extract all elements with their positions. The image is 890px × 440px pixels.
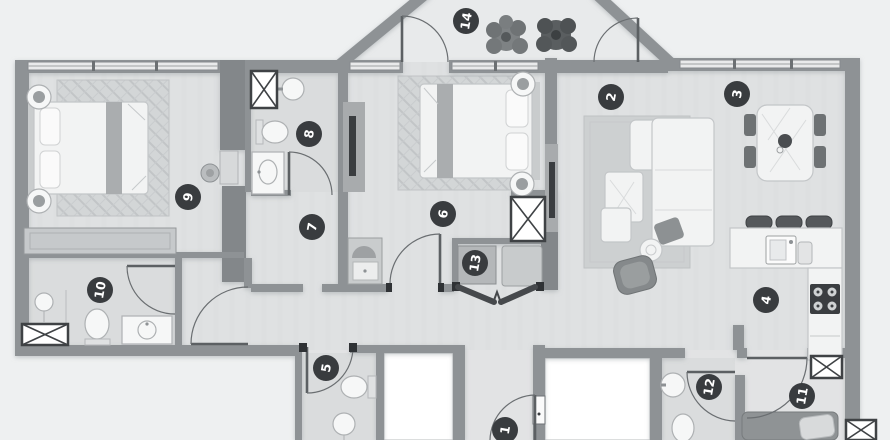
toilet-tank — [368, 376, 376, 398]
toilet-icon — [262, 121, 288, 143]
bedroom-6-vanity — [348, 238, 382, 284]
sink-icon — [259, 160, 277, 184]
room-marker-10: 10 — [87, 277, 113, 303]
room-marker-9: 9 — [175, 184, 201, 210]
floor-plan: 1 2 3 4 5 6 7 8 9 10 11 12 13 14 — [0, 0, 890, 440]
wardrobe-icon — [24, 228, 176, 254]
room-marker-2: 2 — [598, 84, 624, 110]
door-handle — [538, 413, 541, 416]
cutting-board — [798, 242, 812, 264]
room-marker-11: 11 — [789, 383, 815, 409]
svg-text:14: 14 — [457, 11, 475, 31]
faucet-icon — [363, 269, 366, 272]
bar-stool-icon — [776, 216, 802, 229]
toilet-tank — [85, 339, 110, 345]
window-strip-living — [680, 59, 840, 69]
bed-runner — [106, 102, 122, 194]
shower-head-icon — [35, 293, 53, 311]
plant-icon — [517, 78, 529, 90]
cushion — [799, 414, 836, 440]
bar-stool-icon — [806, 216, 832, 229]
room-marker-13: 13 — [462, 250, 488, 276]
tv-icon — [349, 116, 356, 176]
svg-text:10: 10 — [91, 280, 109, 300]
svg-text:13: 13 — [466, 253, 484, 273]
storage-box — [502, 246, 542, 286]
pillow-icon — [40, 108, 60, 145]
svg-text:12: 12 — [700, 377, 718, 397]
stool-seat — [206, 169, 214, 177]
window-strip-bedroom-9 — [28, 61, 218, 71]
sink-icon — [282, 78, 304, 100]
plant-icon — [536, 18, 577, 52]
tv-icon — [549, 162, 555, 218]
chair-icon — [744, 146, 756, 168]
bed-headboard — [532, 82, 540, 180]
svg-text:11: 11 — [793, 386, 811, 406]
bar-stool-icon — [746, 216, 772, 229]
duct-shaft-icon — [846, 420, 876, 440]
room-marker-3: 3 — [724, 81, 750, 107]
centerpiece-plant-icon — [778, 134, 792, 148]
faucet-icon — [257, 170, 260, 173]
room-marker-4: 4 — [753, 287, 779, 313]
toilet-icon — [85, 309, 109, 339]
plant-icon — [33, 195, 45, 207]
desk-icon — [220, 151, 238, 184]
room-marker-7: 7 — [299, 214, 325, 240]
faucet-icon — [145, 322, 148, 325]
toilet-icon — [341, 376, 367, 398]
shower-tray-icon — [251, 71, 277, 108]
chair-icon — [814, 114, 826, 136]
void-room-right — [545, 358, 650, 440]
coffee-table-icon — [601, 208, 631, 242]
room-marker-12: 12 — [696, 374, 722, 400]
void-room-left — [384, 353, 453, 440]
plant-icon — [516, 178, 528, 190]
room-marker-14: 14 — [453, 8, 479, 34]
room-marker-5: 5 — [313, 355, 339, 381]
toilet-icon — [672, 414, 694, 440]
bed-runner — [437, 84, 453, 178]
pillow-icon — [506, 133, 528, 170]
chair-icon — [744, 114, 756, 136]
faucet-icon — [789, 240, 793, 244]
sink-basin — [770, 240, 786, 260]
shower-tray-icon — [22, 324, 68, 345]
room-marker-6: 6 — [430, 201, 456, 227]
stove-icon — [810, 284, 840, 314]
pillow-icon — [40, 151, 60, 188]
room-marker-8: 8 — [296, 121, 322, 147]
duct-shaft-icon — [811, 356, 842, 378]
sink-icon — [333, 413, 355, 435]
chair-icon — [814, 146, 826, 168]
elevator-shaft-icon — [511, 197, 545, 241]
plant-icon — [33, 91, 45, 103]
floor-plan-page: 1 2 3 4 5 6 7 8 9 10 11 12 13 14 — [0, 0, 890, 440]
